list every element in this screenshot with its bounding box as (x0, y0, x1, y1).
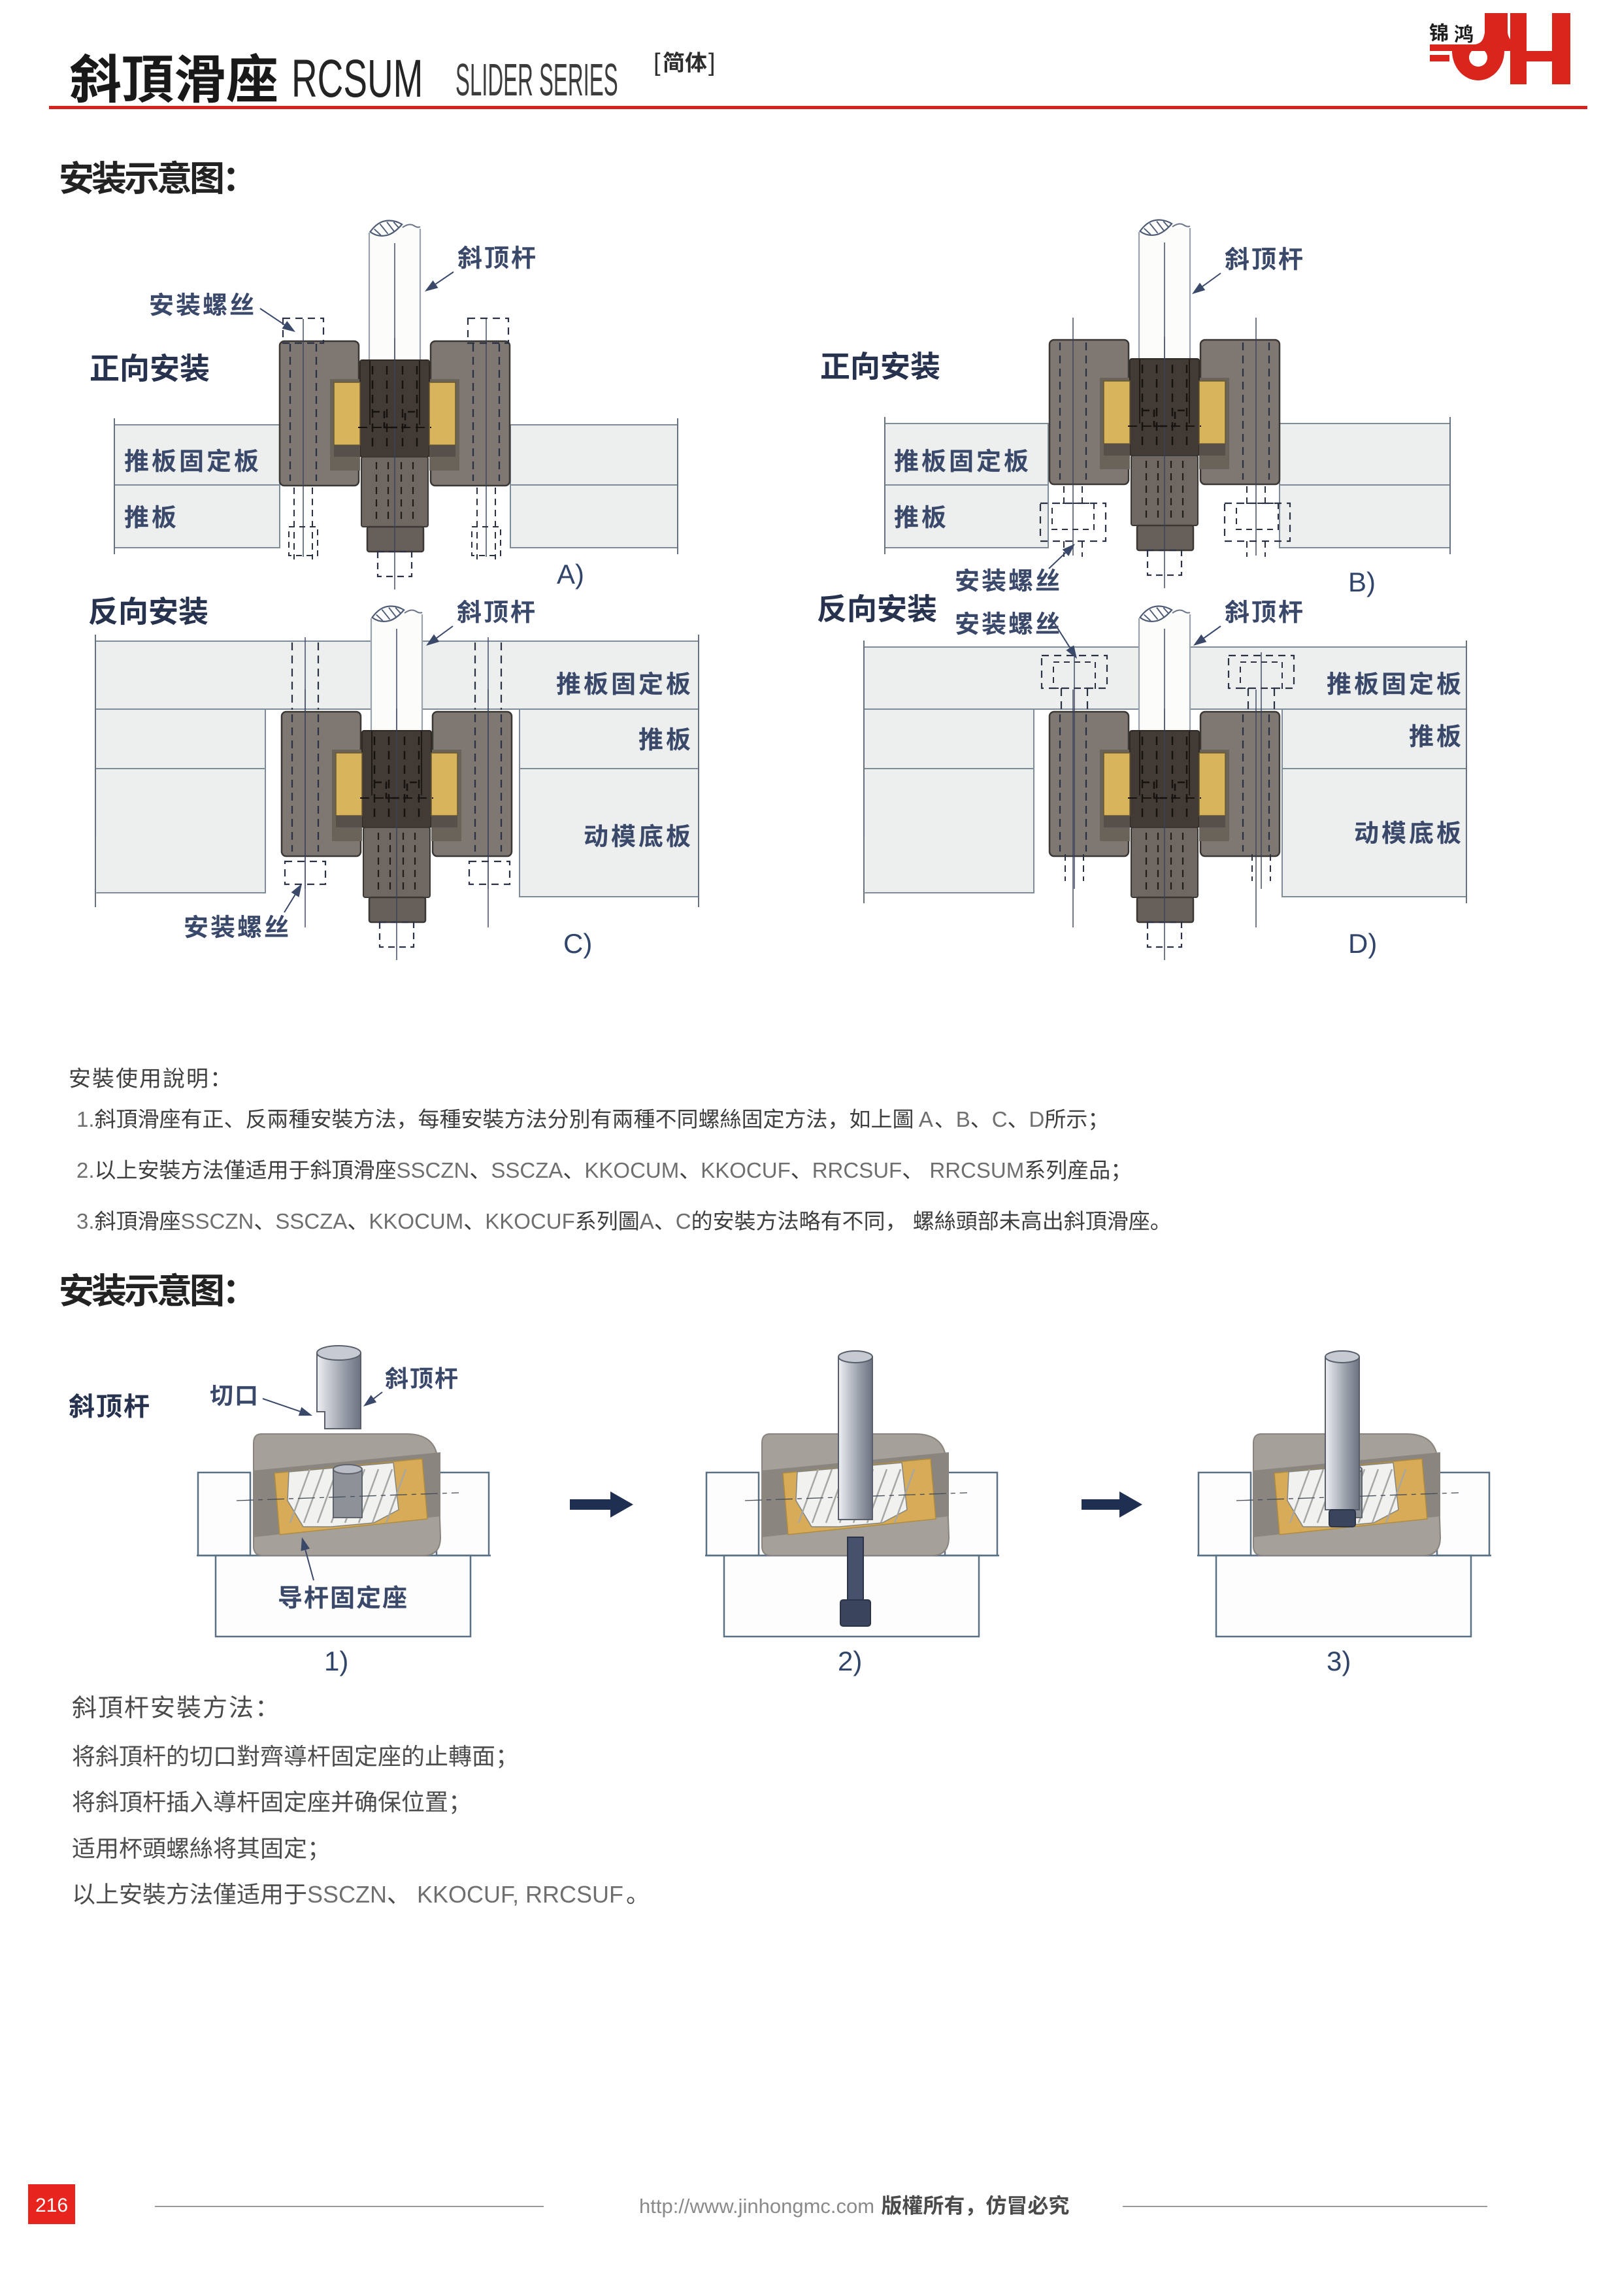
svg-text:D): D) (1348, 928, 1377, 959)
svg-text:C: C (676, 1209, 691, 1233)
svg-text:SSCZA: SSCZA (491, 1158, 563, 1182)
svg-text:RRCSUM: RRCSUM (923, 1158, 1024, 1182)
svg-text:[: [ (653, 49, 661, 76)
svg-text:B): B) (1348, 567, 1376, 597)
svg-text:1): 1) (324, 1646, 348, 1676)
svg-text:RRCSUF: RRCSUF (812, 1158, 902, 1182)
svg-text:A: A (640, 1209, 654, 1233)
svg-text:216: 216 (35, 2195, 68, 2216)
svg-text:SSCZA: SSCZA (275, 1209, 347, 1233)
svg-text:KKOCUF, RRCSUF: KKOCUF, RRCSUF (410, 1881, 623, 1908)
svg-text:KKOCUM: KKOCUM (584, 1158, 679, 1182)
svg-text:KKOCUM: KKOCUM (369, 1209, 463, 1233)
svg-text:2.: 2. (76, 1158, 95, 1182)
svg-text:2): 2) (838, 1646, 862, 1676)
svg-text:C): C) (563, 928, 592, 959)
svg-text:]: ] (708, 49, 716, 76)
svg-text:1.: 1. (76, 1107, 95, 1131)
svg-text:RCSUM: RCSUM (291, 48, 423, 108)
svg-text:KKOCUF: KKOCUF (485, 1209, 575, 1233)
svg-text:SLIDER SERIES: SLIDER SERIES (455, 54, 618, 105)
svg-text:3): 3) (1327, 1646, 1351, 1676)
svg-text:3.: 3. (76, 1209, 95, 1233)
svg-text:A): A) (557, 559, 584, 590)
svg-text:D: D (1029, 1107, 1045, 1131)
svg-text:SSCZN: SSCZN (397, 1158, 470, 1182)
svg-text:KKOCUF: KKOCUF (701, 1158, 791, 1182)
svg-text:SSCZN: SSCZN (181, 1209, 254, 1233)
svg-text:C: C (992, 1107, 1008, 1131)
svg-text:http://www.jinhongmc.com: http://www.jinhongmc.com (639, 2195, 874, 2218)
svg-text:B: B (956, 1107, 970, 1131)
svg-text:SSCZN: SSCZN (307, 1881, 387, 1908)
svg-text:A: A (914, 1107, 933, 1131)
